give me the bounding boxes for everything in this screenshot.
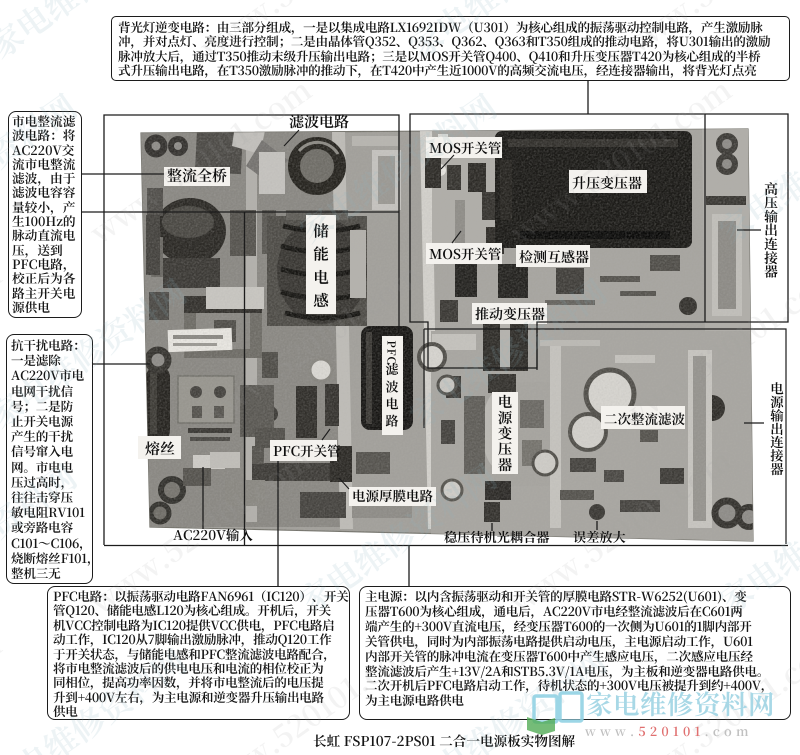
svg-text:MOS开关管: MOS开关管 [429,137,502,157]
svg-text:稳压待机光耦合器: 稳压待机光耦合器 [444,527,550,546]
svg-text:升压变压器: 升压变压器 [572,173,642,193]
svg-text:PFC开关管: PFC开关管 [273,440,341,460]
svg-text:滤波电路: 滤波电路 [289,111,349,132]
svg-text:MOS开关管: MOS开关管 [429,243,502,263]
svg-text:检测互感器: 检测互感器 [519,247,589,267]
svg-text:储: 储 [313,220,329,242]
svg-text:AC220V输入: AC220V输入 [173,524,253,544]
svg-text:器: 器 [770,459,784,478]
svg-text:P: P [384,340,400,347]
svg-text:误差放大: 误差放大 [573,527,626,546]
svg-text:滤: 滤 [385,359,398,378]
svg-text:F: F [384,349,400,356]
svg-text:感: 感 [313,289,329,311]
svg-text:电: 电 [385,393,398,412]
svg-text:器: 器 [764,261,778,281]
svg-text:电源厚膜电路: 电源厚膜电路 [352,485,433,505]
svg-text:能: 能 [313,243,329,265]
svg-text:路: 路 [385,411,398,430]
svg-text:波: 波 [385,376,398,395]
svg-text:器: 器 [498,454,513,475]
svg-text:整流全桥: 整流全桥 [167,165,227,186]
svg-text:熔丝: 熔丝 [145,438,175,459]
svg-text:二次整流滤波: 二次整流滤波 [604,408,685,428]
svg-text:电: 电 [313,266,329,288]
svg-text:推动变压器: 推动变压器 [475,304,545,324]
